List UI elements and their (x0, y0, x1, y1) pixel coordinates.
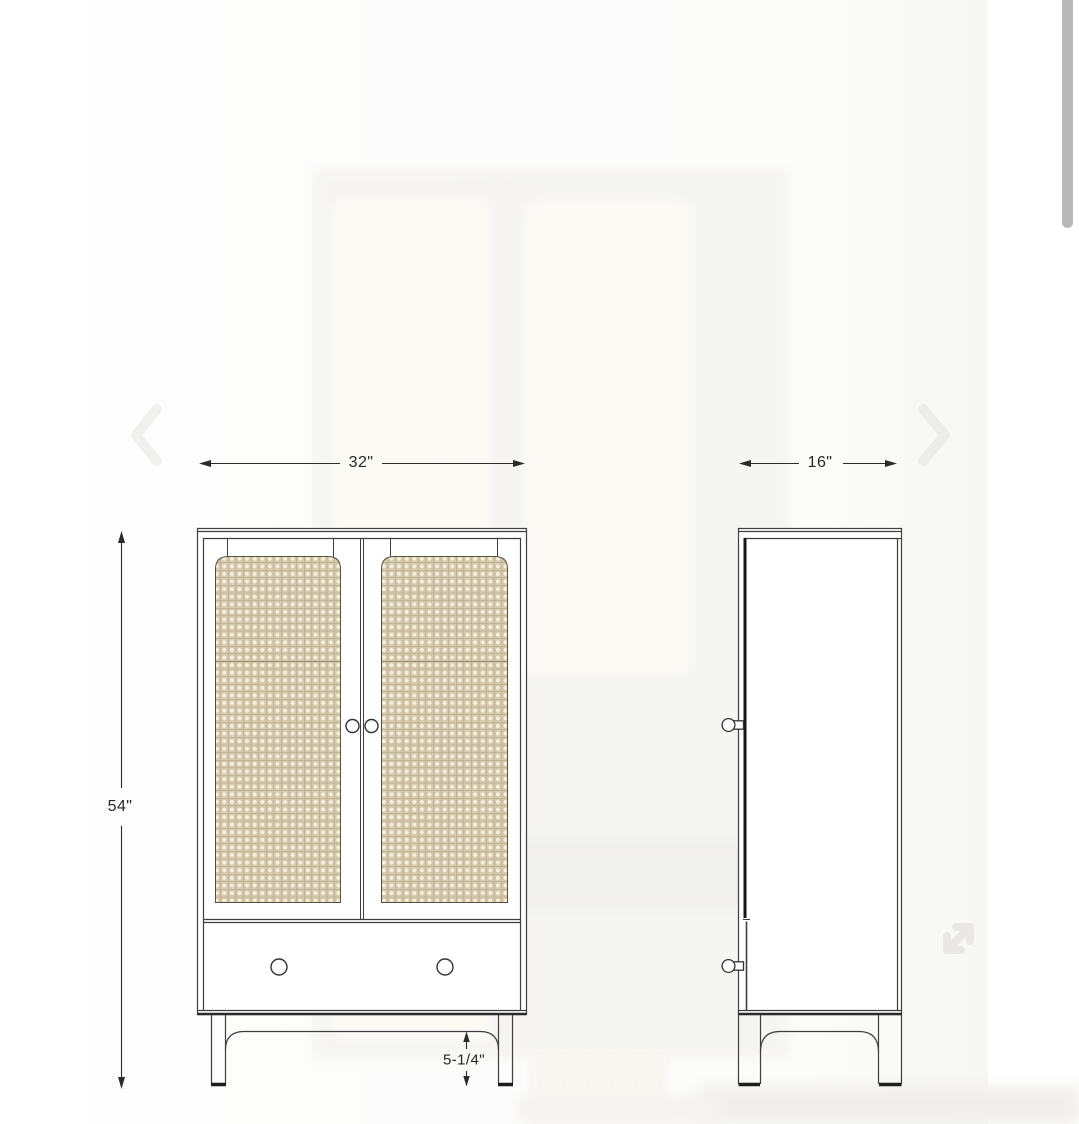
expand-image-button[interactable] (923, 903, 993, 973)
chevron-left-icon (126, 402, 170, 468)
side-legs (739, 1015, 902, 1085)
height-dimension-label: 54" (108, 799, 133, 815)
carousel-next-button[interactable] (912, 402, 956, 468)
leg-height-dimension-label: 5-1/4" (443, 1053, 485, 1068)
front-legs (211, 1015, 513, 1085)
dimension-diagram (0, 0, 1079, 1124)
carousel-prev-button[interactable] (126, 402, 170, 468)
depth-dimension-label: 16" (808, 455, 833, 471)
chevron-right-icon (912, 402, 956, 468)
scrollbar-thumb[interactable] (1062, 0, 1073, 228)
side-view (722, 529, 901, 1085)
front-view (198, 529, 527, 1085)
product-image-viewer: 32" 16" 54" 5-1/4" (0, 0, 1079, 1124)
width-dimension-label: 32" (349, 455, 374, 471)
expand-arrows-icon (923, 903, 993, 973)
